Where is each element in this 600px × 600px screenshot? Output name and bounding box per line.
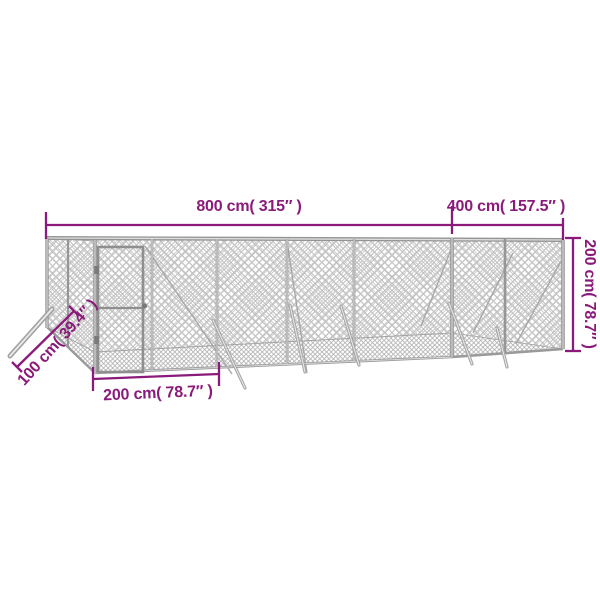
dim-width-line [46, 206, 452, 239]
dim-depth-line [452, 218, 563, 240]
support-pole [10, 309, 52, 356]
door-latch [142, 303, 147, 308]
door-hinge-bottom [95, 336, 100, 344]
door-hinge-top [95, 266, 100, 274]
product-dimension-diagram: 800 cm( 315″ ) 400 cm( 157.5″ ) 200 cm( … [0, 0, 600, 600]
dim-height-line [565, 238, 581, 351]
kennel-illustration [0, 0, 600, 600]
